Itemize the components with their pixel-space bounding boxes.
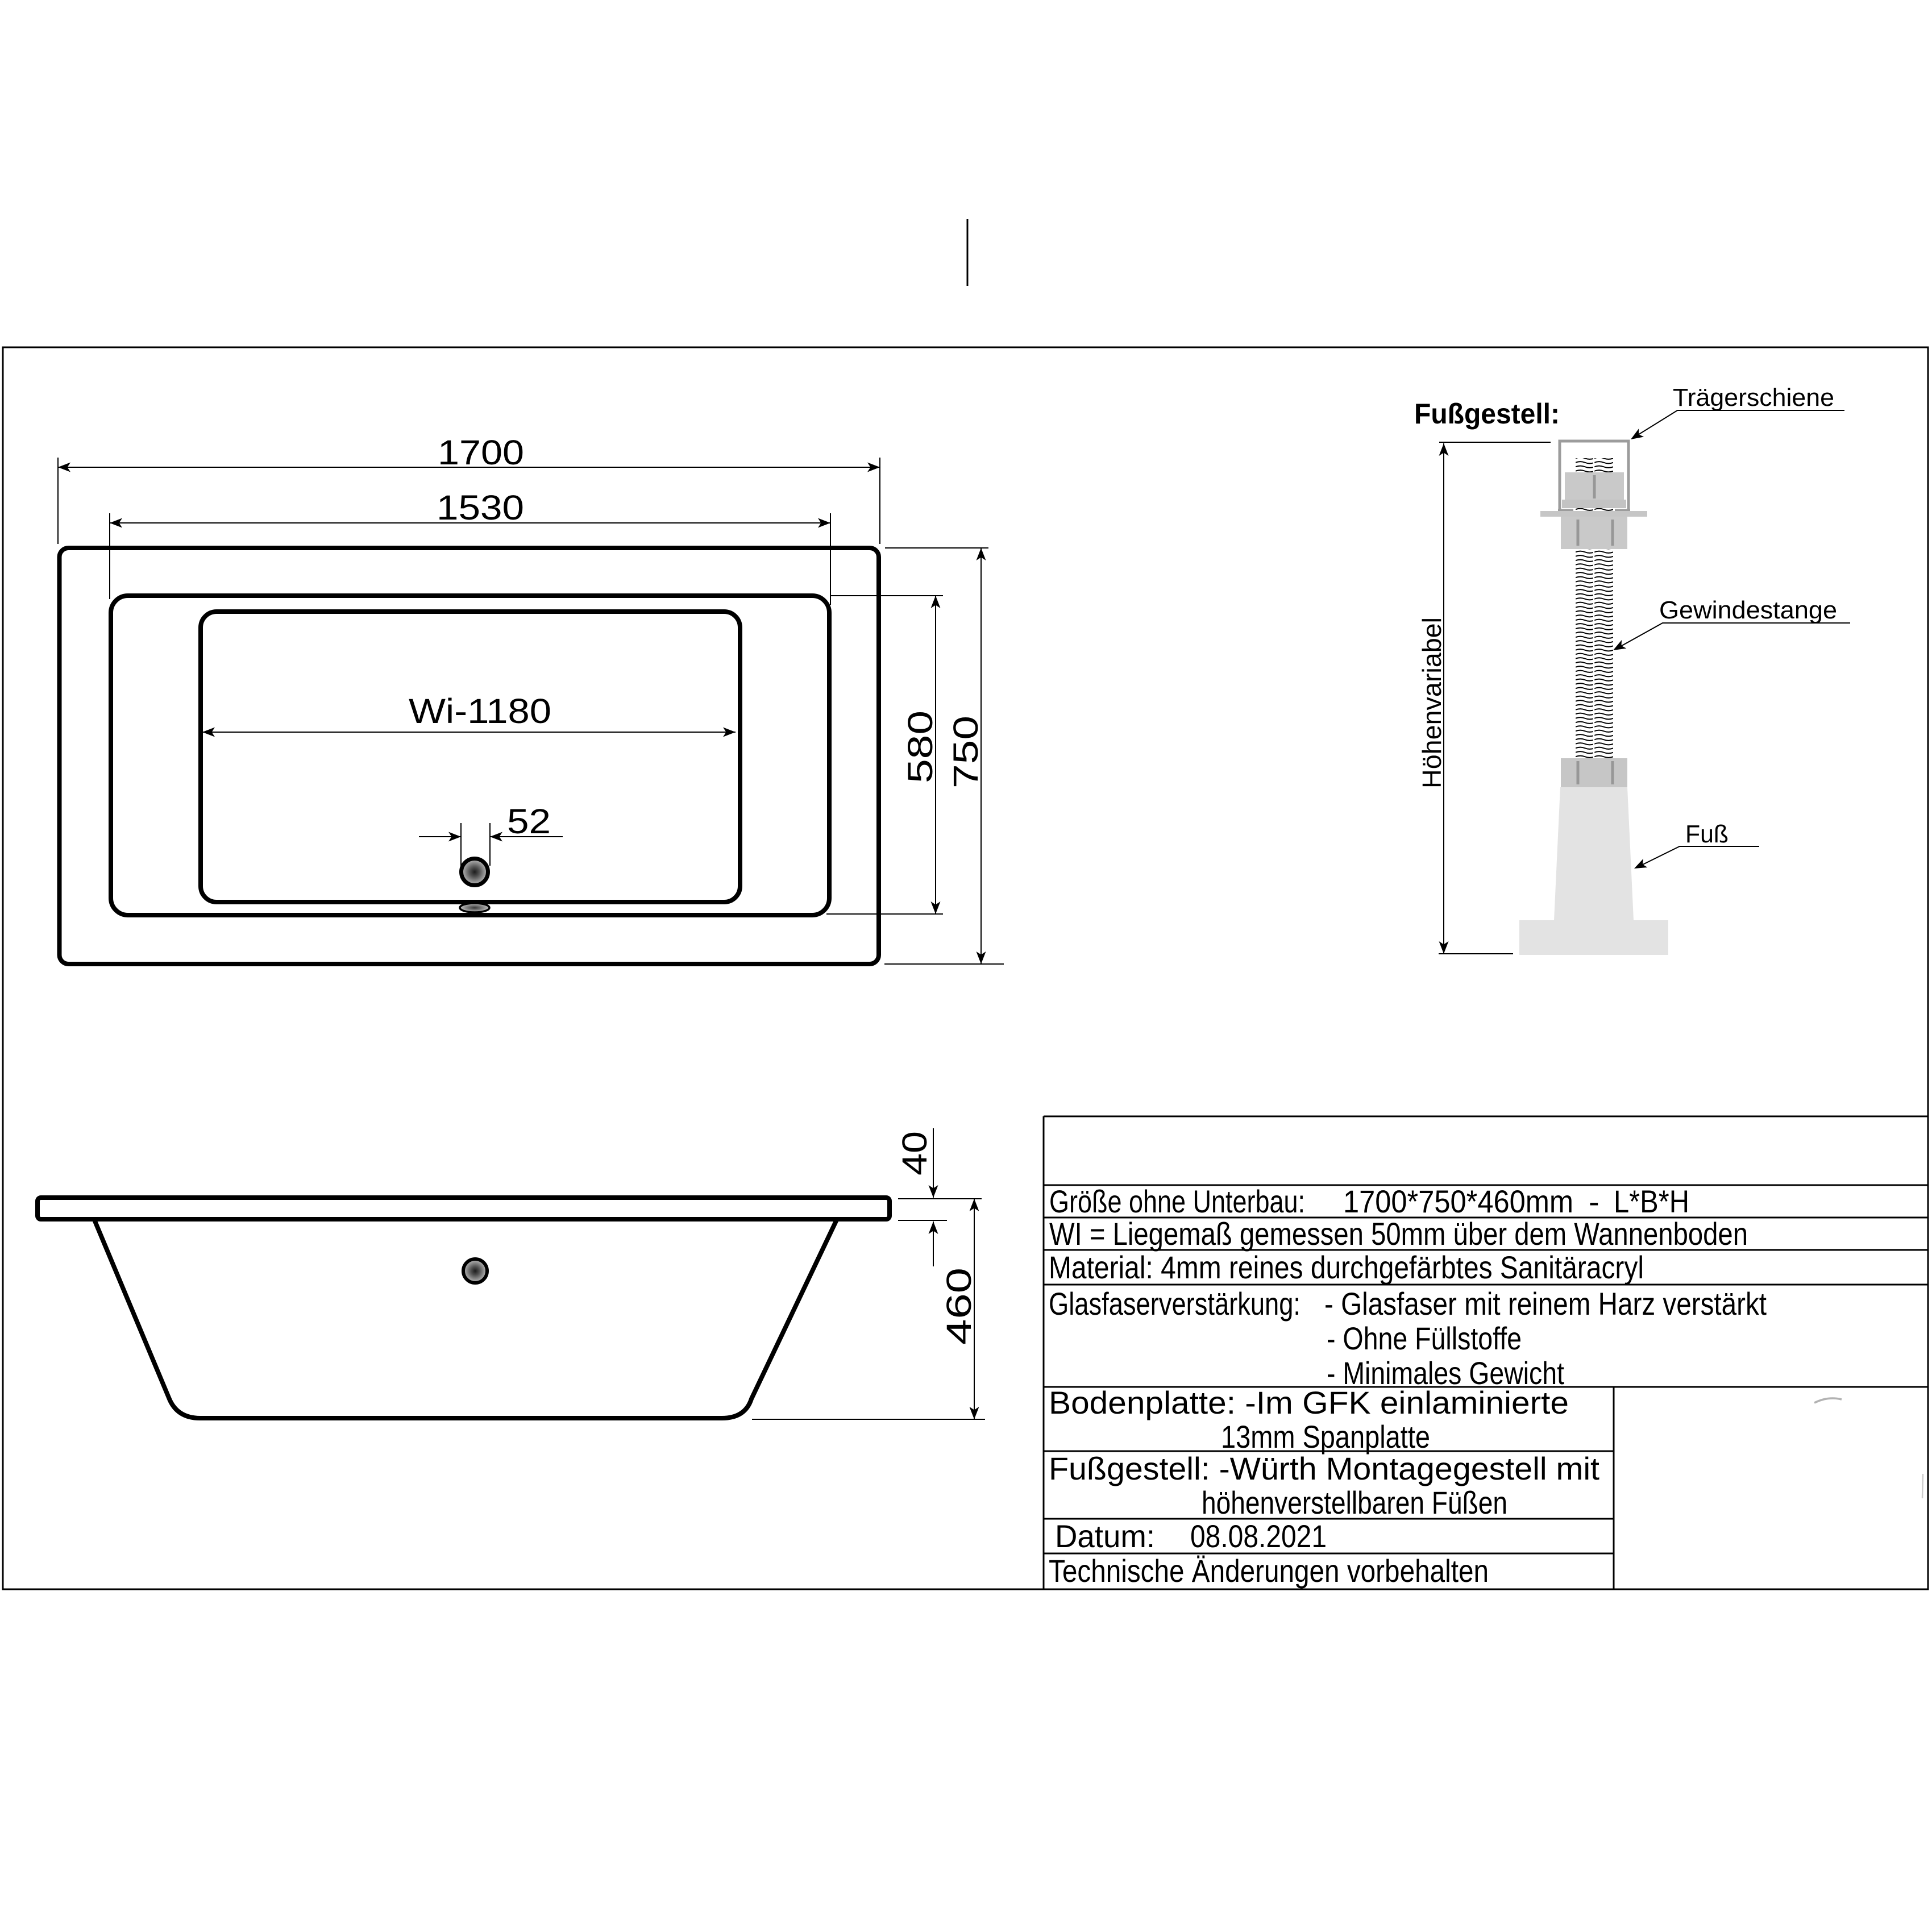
svg-text:Technische Änderungen vorbehal: Technische Änderungen vorbehalten — [1049, 1553, 1489, 1589]
svg-text:L*B*H: L*B*H — [1614, 1183, 1689, 1219]
svg-text:Wi-1180: Wi-1180 — [409, 692, 551, 730]
svg-text:1700: 1700 — [438, 433, 524, 472]
svg-text:1530: 1530 — [437, 488, 524, 527]
svg-text:WI = Liegemaß gemessen 50mm üb: WI = Liegemaß gemessen 50mm über dem Wan… — [1049, 1216, 1748, 1252]
svg-text:Gewindestange: Gewindestange — [1659, 596, 1837, 624]
svg-text:Höhenvariabel: Höhenvariabel — [1417, 617, 1447, 788]
svg-text:460: 460 — [940, 1268, 978, 1345]
svg-text:13mm Spanplatte: 13mm Spanplatte — [1221, 1419, 1430, 1455]
svg-text:Bodenplatte: -Im GFK einlamini: Bodenplatte: -Im GFK einlaminierte — [1049, 1385, 1569, 1420]
svg-text:52: 52 — [507, 802, 551, 841]
svg-text:Größe ohne Unterbau:: Größe ohne Unterbau: — [1049, 1183, 1305, 1219]
svg-text:Fußgestell: -Würth Montagegest: Fußgestell: -Würth Montagegestell mit — [1049, 1451, 1599, 1486]
svg-text:Glasfaserverstärkung:: Glasfaserverstärkung: — [1049, 1286, 1301, 1322]
svg-text:-: - — [1589, 1183, 1599, 1219]
svg-text:Trägerschiene: Trägerschiene — [1673, 384, 1834, 412]
svg-text:- Ohne Füllstoffe: - Ohne Füllstoffe — [1327, 1320, 1522, 1356]
svg-text:höhenverstellbaren Füßen: höhenverstellbaren Füßen — [1202, 1485, 1507, 1520]
svg-text:- Glasfaser mit reinem Harz ve: - Glasfaser mit reinem Harz verstärkt — [1324, 1286, 1767, 1322]
svg-text:Fußgestell:: Fußgestell: — [1414, 398, 1560, 430]
svg-text:580: 580 — [901, 711, 940, 783]
svg-text:40: 40 — [895, 1131, 934, 1175]
svg-text:Material: 4mm reines durchgefä: Material: 4mm reines durchgefärbtes Sani… — [1049, 1249, 1644, 1285]
svg-text:Datum:: Datum: — [1055, 1518, 1155, 1554]
svg-text:1700*750*460mm: 1700*750*460mm — [1343, 1183, 1573, 1219]
svg-text:750: 750 — [946, 716, 985, 788]
svg-text:08.08.2021: 08.08.2021 — [1190, 1518, 1327, 1554]
svg-text:Fuß: Fuß — [1685, 820, 1729, 848]
